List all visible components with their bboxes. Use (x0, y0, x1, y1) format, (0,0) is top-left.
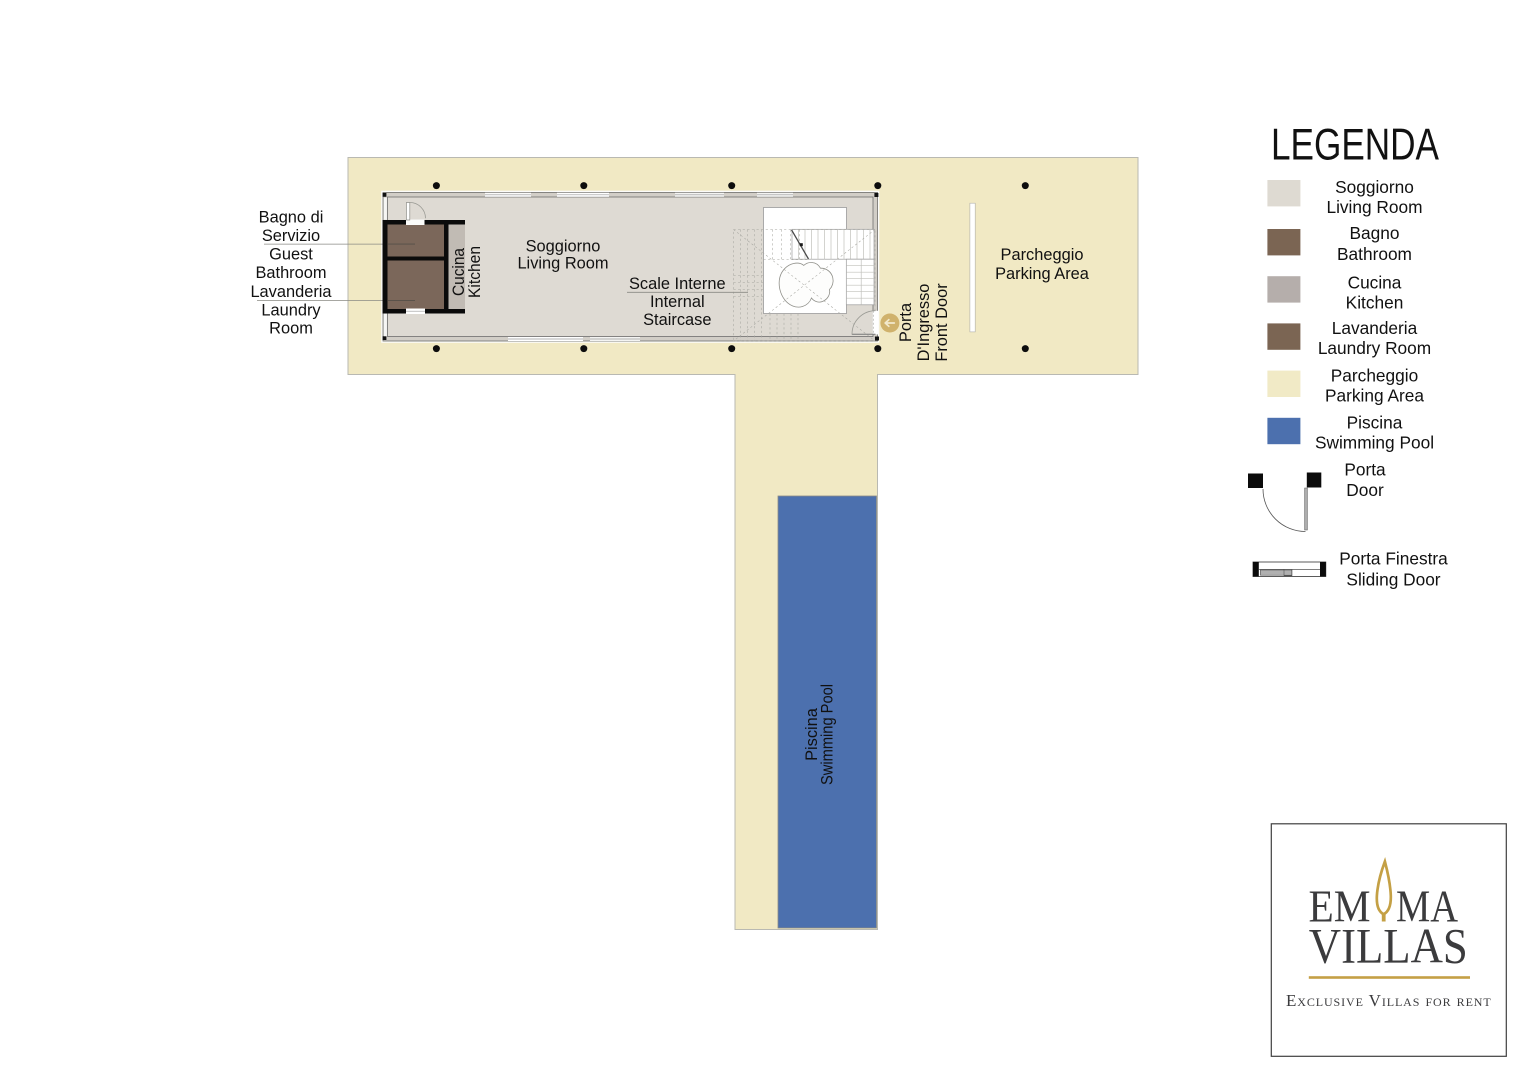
svg-text:Laundry: Laundry (261, 301, 321, 319)
svg-text:Parcheggio: Parcheggio (1331, 366, 1418, 386)
svg-text:Swimming Pool: Swimming Pool (819, 684, 837, 785)
svg-text:Sliding Door: Sliding Door (1346, 570, 1440, 590)
svg-text:Living Room: Living Room (1326, 197, 1422, 217)
svg-text:Soggiorno: Soggiorno (526, 238, 601, 256)
svg-text:Room: Room (269, 319, 313, 337)
svg-text:Parking Area: Parking Area (1325, 385, 1424, 405)
svg-text:Piscina: Piscina (1347, 412, 1403, 432)
svg-text:Living Room: Living Room (517, 255, 608, 273)
svg-text:Bagno di: Bagno di (259, 208, 324, 226)
svg-text:Parking Area: Parking Area (995, 265, 1090, 283)
svg-text:D'Ingresso: D'Ingresso (915, 284, 933, 362)
svg-text:Porta: Porta (897, 302, 915, 342)
svg-text:Lavanderia: Lavanderia (250, 283, 332, 301)
svg-text:Scale Interne: Scale Interne (629, 275, 726, 293)
svg-text:Soggiorno: Soggiorno (1335, 177, 1414, 197)
svg-text:Front Door: Front Door (933, 283, 951, 362)
svg-text:Laundry Room: Laundry Room (1318, 338, 1431, 358)
svg-text:Guest: Guest (269, 245, 313, 263)
svg-text:Servizio: Servizio (262, 227, 320, 245)
svg-text:Internal: Internal (650, 293, 705, 311)
svg-text:Kitchen: Kitchen (466, 246, 484, 298)
svg-text:Lavanderia: Lavanderia (1332, 318, 1418, 338)
svg-text:VILLAS: VILLAS (1309, 918, 1468, 974)
svg-text:Bagno: Bagno (1350, 223, 1400, 243)
svg-text:Porta Finestra: Porta Finestra (1339, 548, 1448, 568)
svg-text:Swimming Pool: Swimming Pool (1315, 433, 1434, 453)
svg-text:Parcheggio: Parcheggio (1001, 246, 1084, 264)
svg-text:Bathroom: Bathroom (1337, 244, 1412, 264)
svg-text:Bathroom: Bathroom (255, 264, 326, 282)
svg-text:Staircase: Staircase (643, 311, 711, 329)
svg-text:Kitchen: Kitchen (1346, 292, 1404, 312)
svg-text:LEGENDA: LEGENDA (1271, 121, 1439, 170)
svg-text:Cucina: Cucina (1348, 273, 1402, 293)
svg-text:Exclusive Villas for rent: Exclusive Villas for rent (1286, 991, 1492, 1010)
svg-text:Door: Door (1346, 480, 1384, 500)
svg-text:Porta: Porta (1344, 460, 1386, 480)
